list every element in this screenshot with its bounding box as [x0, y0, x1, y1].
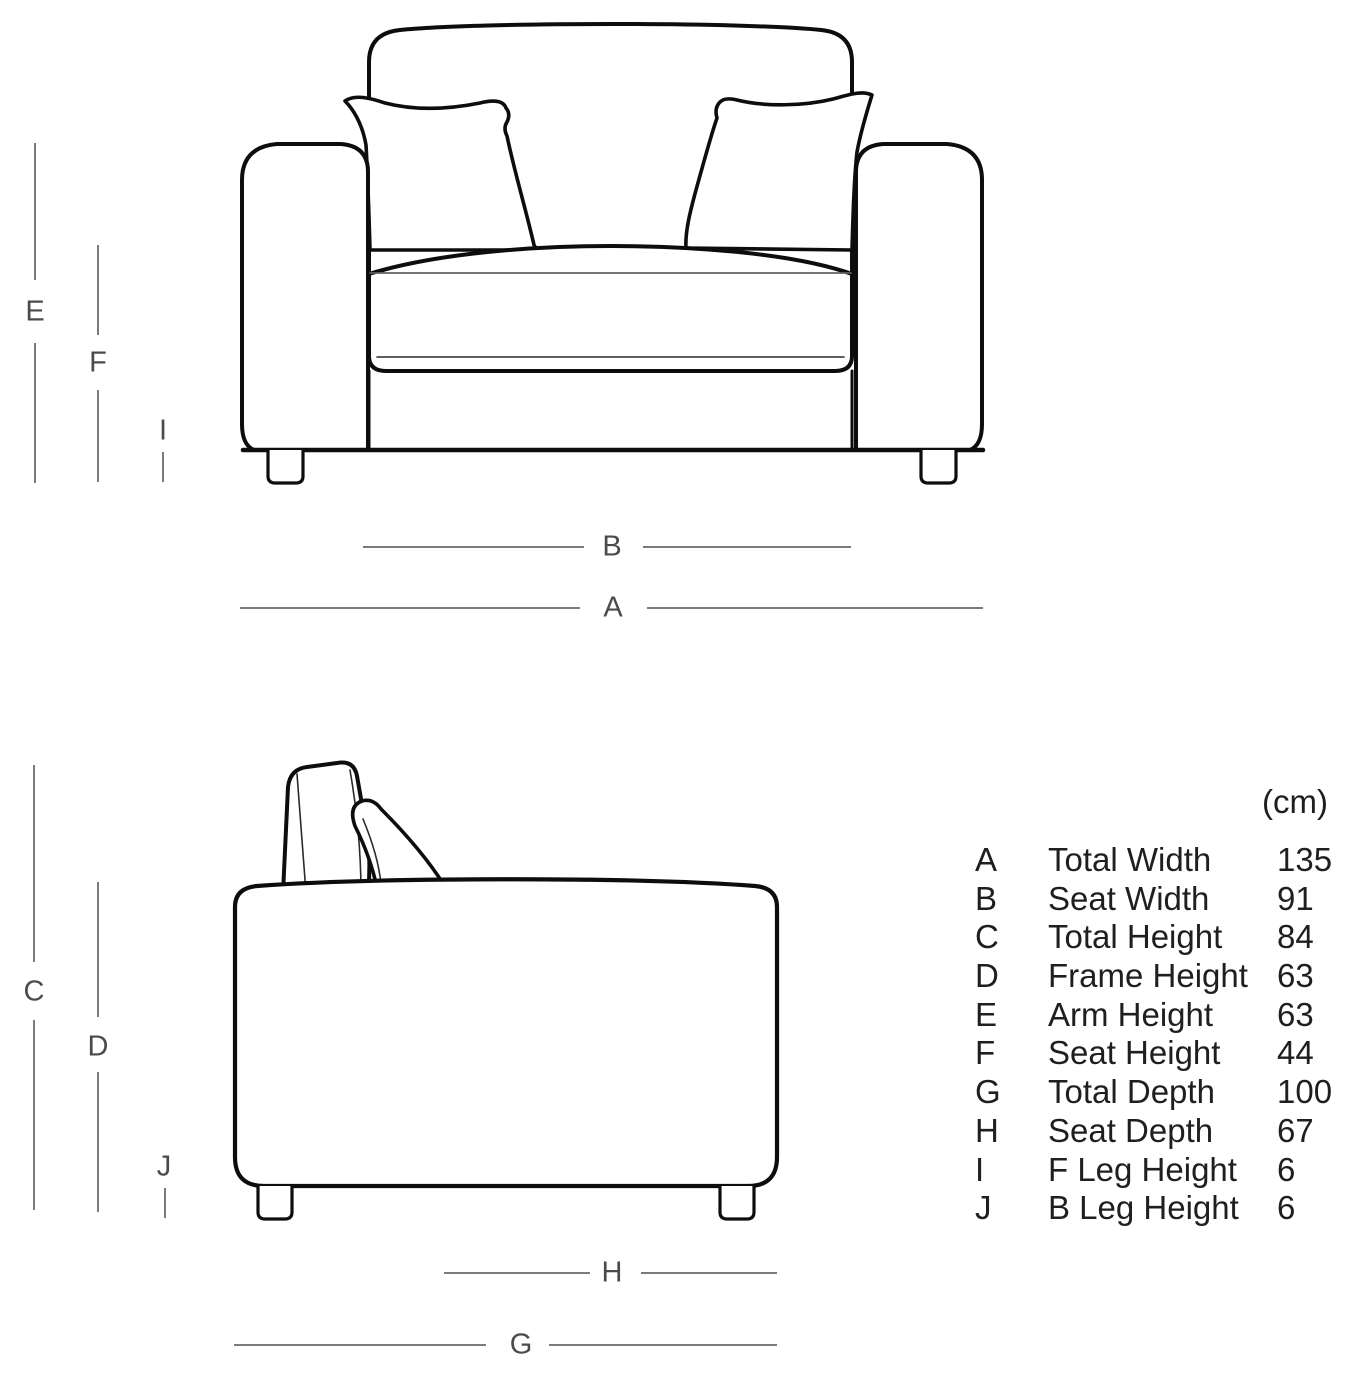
row-value: 63 — [1277, 957, 1332, 996]
dim-G-label: G — [510, 1331, 533, 1360]
table-row: E Arm Height 63 — [975, 996, 1332, 1035]
row-label: Frame Height — [1048, 957, 1277, 996]
front-right-leg — [921, 450, 956, 483]
dim-C-label: C — [24, 978, 45, 1007]
dim-E-line-lower — [34, 343, 36, 483]
table-row: H Seat Depth 67 — [975, 1112, 1332, 1151]
dim-A-label: A — [603, 594, 622, 623]
dim-F-line-upper — [97, 245, 99, 335]
row-value: 63 — [1277, 996, 1332, 1035]
table-row: I F Leg Height 6 — [975, 1151, 1332, 1190]
dim-F-line-lower — [97, 390, 99, 482]
dim-G-line-left — [234, 1344, 486, 1346]
dim-D-line-lower — [97, 1072, 99, 1212]
dim-J-label: J — [157, 1153, 172, 1182]
dim-I-label: I — [159, 417, 167, 446]
dim-I-line-lower — [162, 452, 164, 482]
row-value: 6 — [1277, 1151, 1332, 1190]
row-label: F Leg Height — [1048, 1151, 1277, 1190]
row-label: Arm Height — [1048, 996, 1277, 1035]
table-row: A Total Width 135 — [975, 841, 1332, 880]
row-label: Total Width — [1048, 841, 1277, 880]
unit-header: (cm) — [1262, 783, 1328, 821]
side-back-leg — [258, 1186, 292, 1219]
row-letter: A — [975, 841, 1048, 880]
side-view-drawing — [235, 763, 777, 1219]
row-letter: D — [975, 957, 1048, 996]
dim-A-line-right — [647, 607, 983, 609]
row-label: Total Depth — [1048, 1073, 1277, 1112]
row-letter: F — [975, 1034, 1048, 1073]
row-letter: J — [975, 1189, 1048, 1228]
front-left-pillow — [345, 97, 537, 250]
row-letter: H — [975, 1112, 1048, 1151]
table-row: F Seat Height 44 — [975, 1034, 1332, 1073]
table-row: B Seat Width 91 — [975, 880, 1332, 919]
row-letter: G — [975, 1073, 1048, 1112]
dim-B-line-left — [363, 546, 584, 548]
dim-E-label: E — [25, 298, 44, 327]
table-row: C Total Height 84 — [975, 918, 1332, 957]
front-left-arm — [242, 144, 368, 450]
dim-D-label: D — [88, 1033, 109, 1062]
dim-C-line-lower — [33, 1020, 35, 1210]
row-value: 100 — [1277, 1073, 1332, 1112]
row-label: Seat Depth — [1048, 1112, 1277, 1151]
table-row: D Frame Height 63 — [975, 957, 1332, 996]
dim-G-line-right — [549, 1344, 777, 1346]
row-label: Total Height — [1048, 918, 1277, 957]
dim-H-label: H — [602, 1259, 623, 1288]
row-letter: B — [975, 880, 1048, 919]
side-front-leg — [720, 1186, 754, 1219]
dim-B-line-right — [643, 546, 851, 548]
dim-E-line-upper — [34, 143, 36, 280]
row-label: B Leg Height — [1048, 1189, 1277, 1228]
dim-B-label: B — [602, 533, 621, 562]
row-value: 84 — [1277, 918, 1332, 957]
row-label: Seat Height — [1048, 1034, 1277, 1073]
row-label: Seat Width — [1048, 880, 1277, 919]
row-letter: C — [975, 918, 1048, 957]
row-value: 67 — [1277, 1112, 1332, 1151]
dim-D-line-upper — [97, 882, 99, 1017]
row-letter: E — [975, 996, 1048, 1035]
dim-A-line-left — [240, 607, 580, 609]
front-left-leg — [268, 450, 303, 483]
table-row: G Total Depth 100 — [975, 1073, 1332, 1112]
dim-C-line-upper — [33, 765, 35, 962]
dimension-table: A Total Width 135 B Seat Width 91 C Tota… — [975, 841, 1332, 1228]
dim-J-line-lower — [164, 1188, 166, 1218]
dim-F-label: F — [89, 349, 107, 378]
dim-H-line-right — [641, 1272, 777, 1274]
side-body — [235, 879, 777, 1186]
row-value: 91 — [1277, 880, 1332, 919]
row-value: 44 — [1277, 1034, 1332, 1073]
row-letter: I — [975, 1151, 1048, 1190]
front-view-drawing — [242, 24, 983, 483]
row-value: 135 — [1277, 841, 1332, 880]
front-seat-cushion — [369, 246, 852, 371]
table-row: J B Leg Height 6 — [975, 1189, 1332, 1228]
dimension-diagram: E F I B A C D J H G (cm) A Total Width 1… — [0, 0, 1358, 1382]
dim-H-line-left — [444, 1272, 590, 1274]
front-right-arm — [856, 144, 982, 450]
row-value: 6 — [1277, 1189, 1332, 1228]
